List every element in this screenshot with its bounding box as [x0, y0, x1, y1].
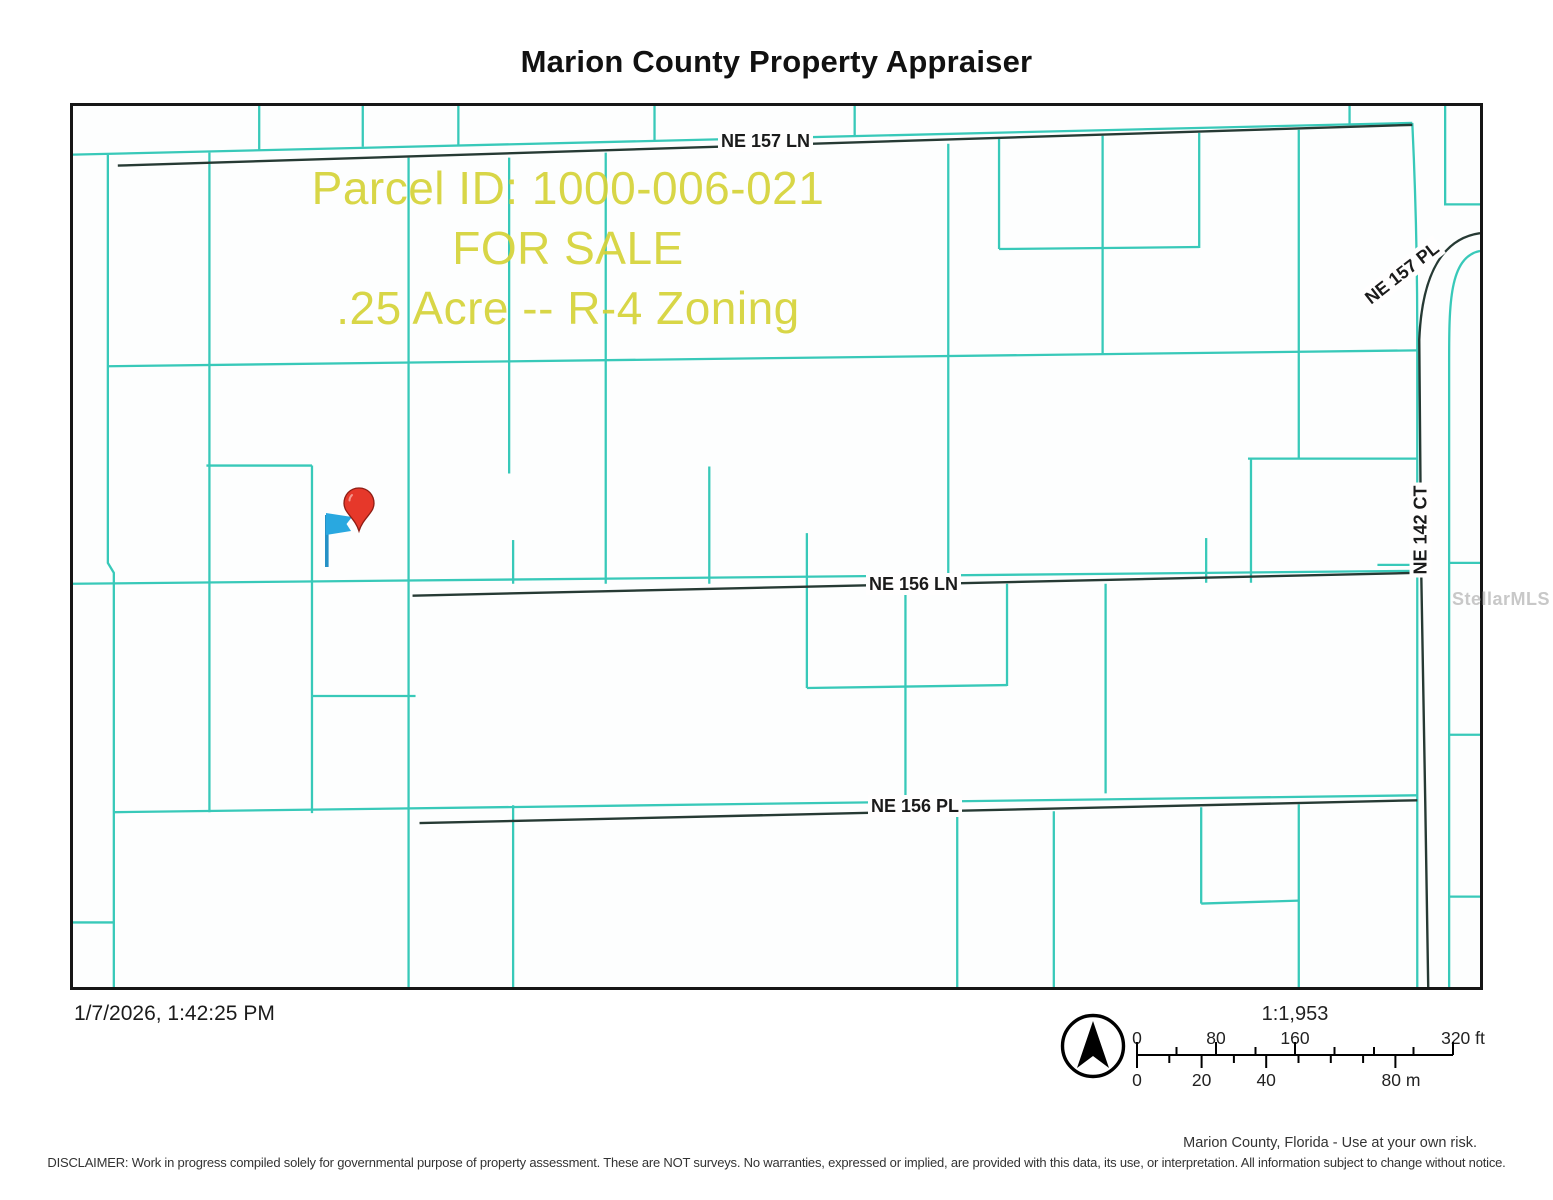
overlay-for-sale: FOR SALE [223, 218, 913, 278]
disclaimer-text: DISCLAIMER: Work in progress compiled so… [0, 1155, 1553, 1170]
scale-bar-line [1137, 1042, 1453, 1068]
stellar-mls-watermark: StellarMLS [1452, 589, 1550, 610]
map-pin-icon[interactable] [341, 486, 377, 546]
overlay-parcel-id: Parcel ID: 1000-006-021 [223, 158, 913, 218]
overlay-zoning: .25 Acre -- R-4 Zoning [223, 278, 913, 338]
scale-m-40: 40 [1256, 1070, 1276, 1090]
north-arrow-icon [1056, 1009, 1130, 1083]
street-label-ne-142-ct: NE 142 CT [1410, 482, 1432, 577]
scale-bar: 1:1,953 0 80 160 320 ft [1125, 998, 1505, 1090]
scale-ft-320: 320 ft [1441, 1028, 1485, 1048]
street-label-ne-156-pl: NE 156 PL [868, 795, 962, 817]
street-label-ne-156-ln: NE 156 LN [866, 573, 961, 595]
scale-m-0: 0 [1132, 1070, 1142, 1090]
scale-m-20: 20 [1192, 1070, 1212, 1090]
page: Marion County Property Appraiser [0, 0, 1553, 1200]
parcel-overlay-text: Parcel ID: 1000-006-021 FOR SALE .25 Acr… [223, 158, 913, 338]
scale-ratio-text: 1:1,953 [1262, 1003, 1329, 1025]
street-label-ne-157-ln: NE 157 LN [718, 130, 813, 152]
page-title: Marion County Property Appraiser [0, 44, 1553, 80]
scale-m-80: 80 m [1382, 1070, 1421, 1090]
attribution-text: Marion County, Florida - Use at your own… [900, 1135, 1477, 1151]
map-timestamp: 1/7/2026, 1:42:25 PM [74, 1002, 275, 1026]
parcel-map[interactable]: Parcel ID: 1000-006-021 FOR SALE .25 Acr… [70, 103, 1483, 990]
